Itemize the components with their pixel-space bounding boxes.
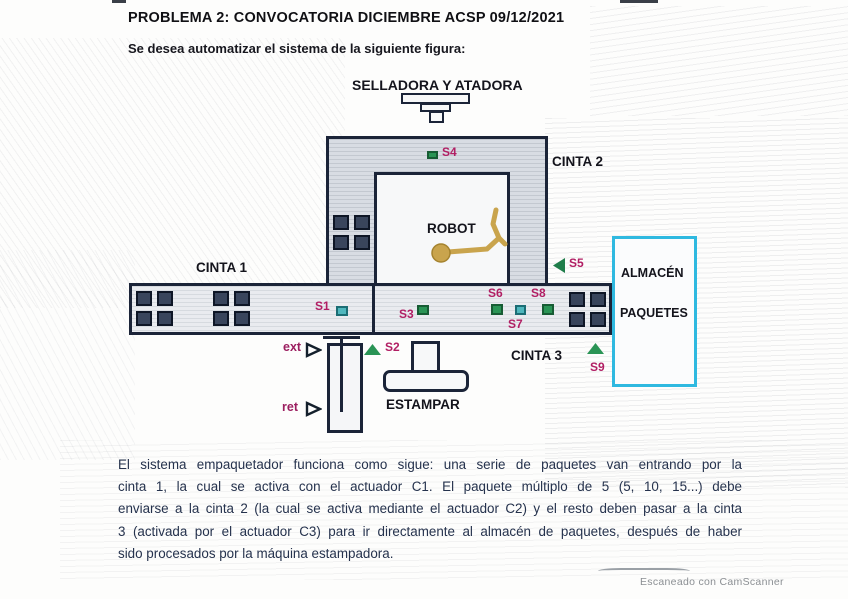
sensor-s7-icon (515, 305, 526, 315)
cinta1-label: CINTA 1 (196, 260, 247, 275)
scan-streak-artifact (590, 6, 848, 116)
scan-hatch-artifact (0, 250, 135, 460)
paragraph-line: sido procesados por la máquina estampado… (118, 543, 742, 565)
ret-arrow-icon (305, 401, 322, 417)
sensor-s1-icon (336, 306, 348, 316)
estampar-base (383, 370, 469, 392)
package-box (569, 292, 606, 327)
selladora-label: SELLADORA Y ATADORA (352, 77, 523, 93)
intro-sentence: Se desea automatizar el sistema de la si… (128, 41, 465, 56)
selladora-press-icon (429, 111, 444, 123)
sensor-s9-label: S9 (590, 360, 605, 374)
sensor-s9-icon (587, 343, 604, 354)
estampar-label: ESTAMPAR (386, 397, 460, 412)
sensor-s1-label: S1 (315, 299, 330, 313)
sensor-s5-label: S5 (569, 256, 584, 270)
sensor-s3-label: S3 (399, 307, 414, 321)
ext-label: ext (283, 340, 301, 354)
scan-edge-mark (112, 0, 126, 3)
package-box (136, 291, 173, 326)
almacen-label-line2: PAQUETES (620, 306, 688, 320)
ret-label: ret (282, 400, 298, 414)
sensor-s6-label: S6 (488, 286, 503, 300)
cylinder-rod (340, 337, 343, 412)
scan-edge-mark (620, 0, 658, 3)
scan-hatch-artifact (0, 38, 345, 308)
paragraph-line: 3 (activada por el actuador C3) para ir … (118, 521, 742, 543)
problem-description: El sistema empaquetador funciona como si… (118, 454, 742, 565)
page-title: PROBLEMA 2: CONVOCATORIA DICIEMBRE ACSP … (128, 10, 564, 26)
cylinder-body (327, 343, 363, 433)
paragraph-line: enviarse a la cinta 2 (la cual se activa… (118, 498, 742, 520)
sensor-s2-icon (364, 344, 381, 355)
sensor-s2-label: S2 (385, 340, 400, 354)
package-box (333, 215, 370, 250)
scanned-document-page: PROBLEMA 2: CONVOCATORIA DICIEMBRE ACSP … (0, 0, 848, 599)
sensor-s8-label: S8 (531, 286, 546, 300)
cinta2-label: CINTA 2 (552, 154, 603, 169)
camscanner-credit: Escaneado con CamScanner (640, 576, 784, 588)
package-box (213, 291, 250, 326)
robot-arm-icon (425, 200, 535, 270)
paragraph-line: El sistema empaquetador funciona como si… (118, 454, 742, 476)
sensor-s3-icon (417, 305, 429, 315)
sensor-s5-icon (553, 258, 565, 273)
sensor-s4-icon (427, 151, 438, 159)
scan-squiggle-mark (598, 568, 690, 574)
ext-arrow-icon (305, 342, 322, 358)
sensor-s4-label: S4 (442, 145, 457, 159)
almacen-label-line1: ALMACÉN (621, 266, 684, 280)
sensor-s6-icon (491, 304, 503, 315)
paragraph-line: cinta 1, la cual se activa con el actuad… (118, 476, 742, 498)
cinta3-label: CINTA 3 (511, 348, 562, 363)
sensor-s8-icon (542, 304, 554, 315)
sensor-s7-label: S7 (508, 317, 523, 331)
